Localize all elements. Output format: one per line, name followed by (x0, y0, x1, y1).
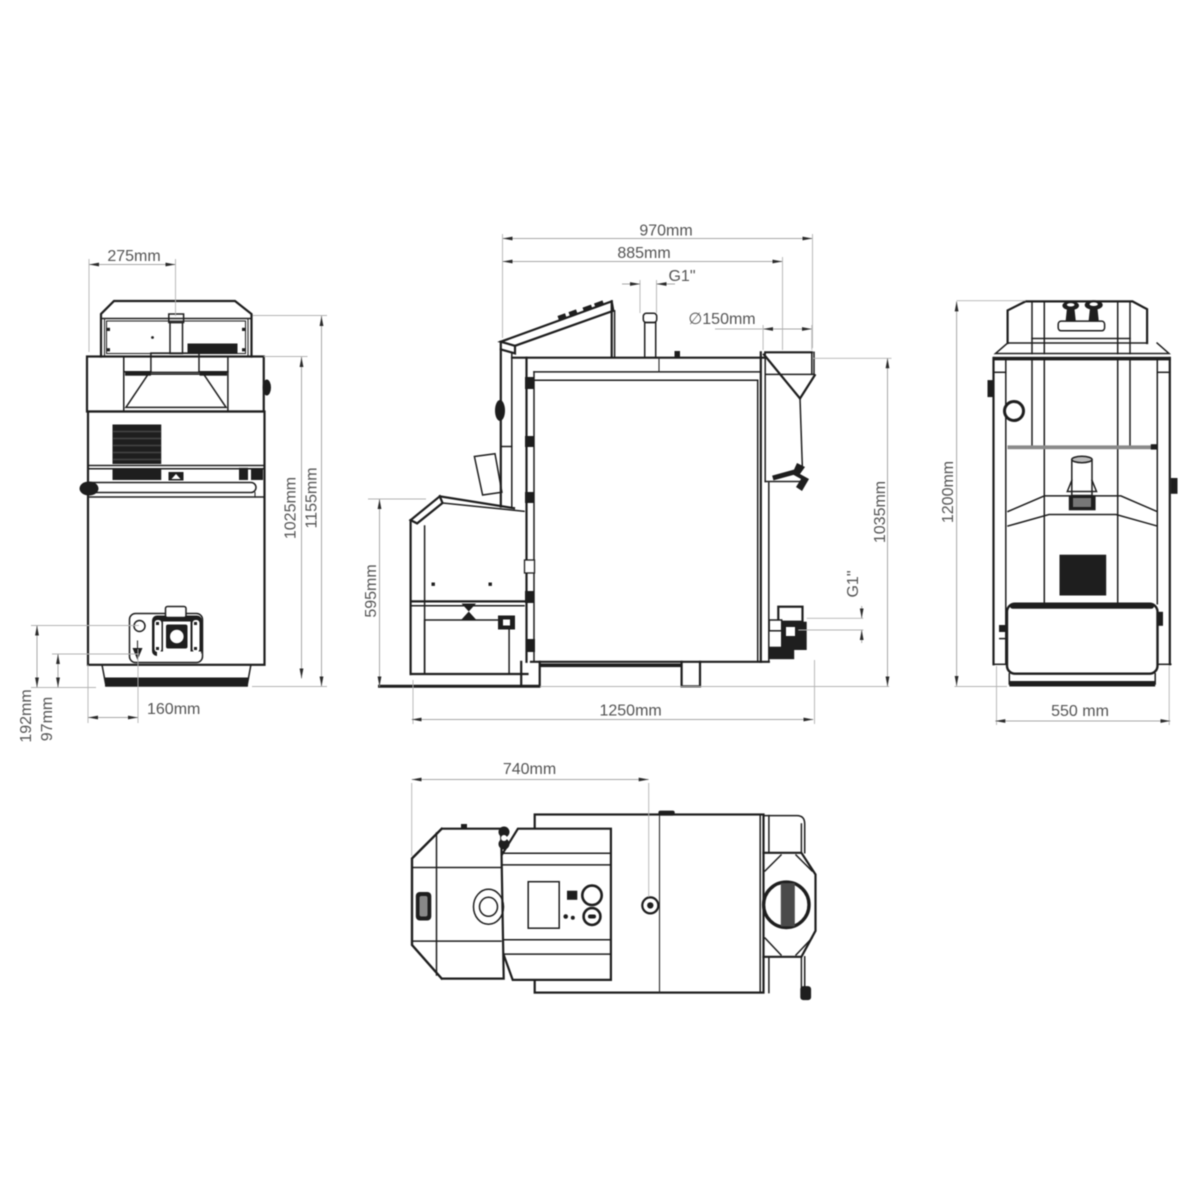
svg-text:275mm: 275mm (107, 248, 160, 265)
svg-text:192mm: 192mm (18, 689, 35, 742)
svg-text:1025mm: 1025mm (283, 477, 300, 539)
svg-text:G1": G1" (845, 570, 862, 597)
svg-text:550 mm: 550 mm (1051, 703, 1109, 720)
svg-text:970mm: 970mm (639, 223, 692, 240)
svg-text:885mm: 885mm (617, 245, 670, 262)
svg-text:G1": G1" (668, 268, 695, 285)
svg-text:1200mm: 1200mm (940, 461, 957, 523)
svg-text:∅150mm: ∅150mm (688, 311, 755, 328)
svg-text:595mm: 595mm (363, 564, 380, 617)
svg-text:1250mm: 1250mm (599, 703, 661, 720)
svg-text:1035mm: 1035mm (872, 481, 889, 543)
svg-text:160mm: 160mm (147, 701, 200, 718)
svg-text:740mm: 740mm (503, 761, 556, 778)
svg-text:97mm: 97mm (39, 697, 56, 741)
svg-text:1155mm: 1155mm (304, 467, 321, 528)
